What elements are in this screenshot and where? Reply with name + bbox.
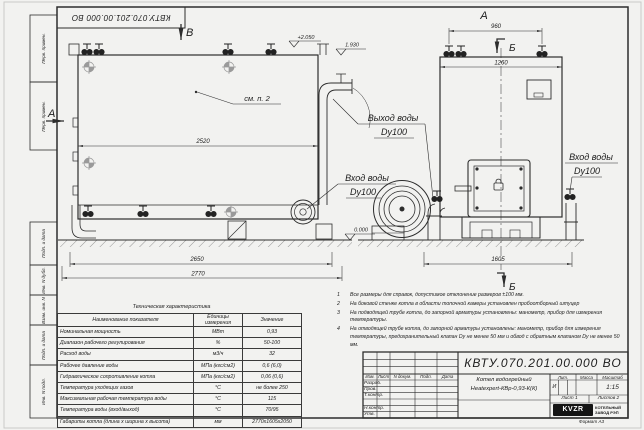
spec-table: Наименование показателя Единицы измерени…	[57, 313, 302, 428]
titleblock-col-list: Лист	[377, 374, 390, 380]
titleblock-col-sign: Подп.	[415, 374, 437, 380]
titleblock-col-doc: N докум.	[390, 374, 415, 380]
mass-header: Масса	[576, 375, 597, 380]
sheets-info: Листов 2	[589, 395, 628, 403]
inlet-front-label-line1: Вход воды	[345, 173, 389, 183]
role-tcontrol: Т.контр.	[364, 393, 383, 398]
margin-label-inv-orig: Инв. N подл.	[30, 365, 57, 418]
dim-960: 960	[491, 24, 502, 30]
side-view-bottom-valves	[82, 206, 216, 217]
table-row: Температура воды (вход/выход)°С70/95	[58, 405, 302, 416]
margin-label-sign-date-2: Подп. и дата	[30, 325, 57, 365]
elevation-zero: 0.000	[354, 228, 369, 234]
margin-label-vzam-inv: Взам. инв. N	[30, 295, 57, 325]
margin-label-inv-dupl: Инв. N дубл.	[30, 265, 57, 295]
dim-2770: 2770	[190, 272, 205, 278]
dim-1605: 1605	[491, 257, 505, 263]
table-row: Температура уходящих газов°Сне более 250	[58, 382, 302, 393]
kvzr-logo-caption-line2: ЗАВОД РЭП	[595, 410, 627, 415]
spec-col-value: Значение	[243, 314, 302, 327]
boiler-engineering-drawing: { "sheet": {"format_note": "Формат А3"},…	[0, 0, 644, 430]
boiler-front-view	[440, 48, 562, 270]
sheet-info: Лист 1	[550, 395, 589, 403]
table-row: Номинальная мощностьМВт0,93	[58, 327, 302, 338]
dim-2650: 2650	[189, 257, 204, 263]
note-ref-label: см. п. 2	[244, 94, 270, 103]
inlet-right-label-line2: Dy100	[574, 166, 600, 176]
margin-label-first-use-1: Перв. примен.	[30, 15, 57, 82]
note-item: 2На боковой стенке котла в области топоч…	[337, 301, 626, 309]
role-approver: Утв.	[364, 412, 375, 417]
notes-list: 1Все размеры для справок, допустимое отк…	[337, 292, 626, 351]
side-view-roof-fittings	[81, 44, 276, 55]
role-ncontrol: Н.контр.	[364, 406, 384, 411]
section-b-top: Б	[509, 43, 516, 54]
margin-label-sign-date-1: Подп. и дата	[30, 222, 57, 265]
spec-header-row: Наименование показателя Единицы измерени…	[58, 314, 302, 327]
table-row: Габариты котла (длина х ширина х высота)…	[58, 416, 302, 427]
table-row: Расход водым3/ч32	[58, 349, 302, 360]
note-item: 4На отводящей трубе котла, до запорной а…	[337, 326, 626, 349]
right-inlet-piping	[564, 203, 578, 240]
note-item: 3На подводящей трубе котла, до запорной …	[337, 310, 626, 326]
kvzr-logo: KVZR	[553, 404, 593, 416]
lit-header: Лит.	[550, 375, 576, 380]
outlet-label-line1: Выход воды	[368, 113, 419, 123]
note-item: 1Все размеры для справок, допустимое отк…	[337, 292, 626, 300]
elevation-top: +2.050	[298, 35, 316, 41]
role-checker: Пров.	[364, 387, 377, 392]
spec-table-title: Техническая характеристика	[57, 304, 286, 310]
blower-fan	[372, 181, 431, 241]
spec-col-units: Единицы измерения	[194, 314, 243, 327]
elevation-marks	[289, 41, 375, 240]
product-name-line2: Heatexpert-КВр-0,93-К(К)	[458, 386, 550, 392]
format-note: Формат А3	[555, 419, 628, 424]
table-row: Диапазон рабочего регулирования%50-100	[58, 338, 302, 349]
role-developer: Разраб.	[364, 381, 381, 386]
lifting-marks	[82, 60, 238, 219]
scale-header: Масштаб	[597, 375, 628, 380]
dim-1260: 1260	[494, 61, 508, 67]
doc-number: КВТУ.070.201.00.000 ВО	[458, 352, 628, 374]
spec-col-name: Наименование показателя	[58, 314, 194, 327]
lit-value: И	[550, 380, 559, 395]
table-row: Гидравлическое сопротивление котлаМПа (к…	[58, 371, 302, 382]
view-marker-a-front: А	[479, 10, 487, 22]
scale-value: 1:15	[597, 380, 628, 395]
front-view-roof-fittings	[443, 46, 547, 57]
margin-label-first-use-2: Перв. примен.	[30, 82, 57, 150]
view-section-markers	[46, 24, 505, 287]
table-row: Максимальная рабочая температура воды°С1…	[58, 394, 302, 405]
titleblock-col-izm: Изм.	[363, 374, 377, 380]
front-inlet-piping	[426, 204, 445, 240]
elevation-mid: 1.930	[345, 43, 360, 49]
ground-hatching	[58, 240, 584, 247]
table-row: Рабочее давление водыМПа (кгс/см2)0,6 (6…	[58, 360, 302, 371]
boiler-side-view	[69, 44, 370, 239]
corner-stamp-text: КВТУ.070.201.00.000 ВО	[57, 7, 185, 28]
inlet-right-label-line1: Вход воды	[569, 152, 613, 162]
dim-2520: 2520	[195, 139, 210, 145]
outlet-label-line2: Dy100	[381, 127, 407, 137]
inlet-front-label-line2: Dy100	[350, 187, 376, 197]
product-name-line1: Котел водогрейный	[458, 377, 550, 383]
view-marker-b: В	[186, 27, 193, 39]
titleblock-col-date: Дата	[437, 374, 458, 380]
kvzr-logo-caption: КОТЕЛЬНЫЙ ЗАВОД РЭП	[595, 405, 627, 415]
